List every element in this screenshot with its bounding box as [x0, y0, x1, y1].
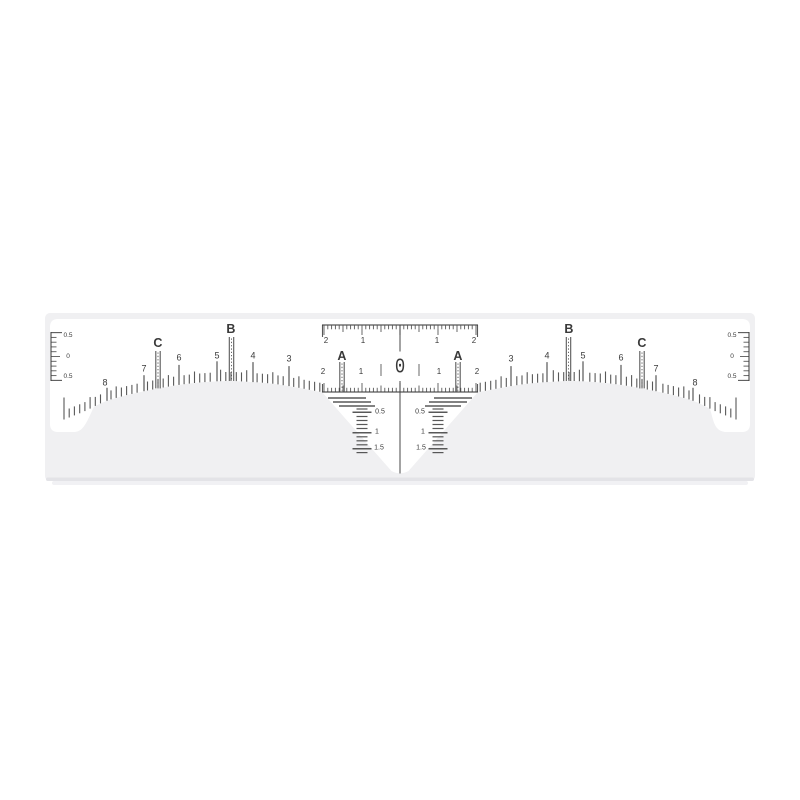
arch-number-right-3: 3 [508, 355, 513, 364]
side-scale-left-05-bottom: 0.5 [63, 374, 72, 381]
marker-a-left: A [337, 350, 346, 363]
marker-a-right: A [453, 350, 462, 363]
drop-scale-right-05: 0.5 [415, 409, 425, 416]
drop-scale-left-1: 1 [375, 429, 379, 436]
arch-number-left-4: 4 [250, 352, 255, 361]
side-scale-right-0: 0 [730, 354, 734, 361]
drop-scale-left-05: 0.5 [375, 409, 385, 416]
drop-scale-right-1: 1 [421, 429, 425, 436]
arch-number-right-8: 8 [692, 379, 697, 388]
ruler-sticker-graphic [0, 0, 800, 800]
marker-b-left: B [226, 323, 235, 336]
mid-scale-label-1-left: 1 [359, 368, 363, 376]
side-scale-right-05-bottom: 0.5 [727, 374, 736, 381]
arch-number-left-6: 6 [176, 354, 181, 363]
center-zero-label: 0 [395, 358, 405, 379]
side-scale-left-0: 0 [66, 354, 70, 361]
top-scale-label-2-right: 2 [472, 337, 476, 345]
mid-scale-label-2-left: 2 [321, 368, 325, 376]
top-scale-label-2-left: 2 [324, 337, 328, 345]
side-scale-left-05-top: 0.5 [63, 333, 72, 340]
mid-scale-label-2-right: 2 [475, 368, 479, 376]
side-scale-right-05-top: 0.5 [727, 333, 736, 340]
mid-scale-label-1-right: 1 [437, 368, 441, 376]
drop-scale-right-15: 1.5 [416, 445, 426, 452]
marker-c-right: C [637, 337, 646, 350]
top-scale-label-1-left: 1 [361, 337, 365, 345]
marker-b-right: B [564, 323, 573, 336]
arch-number-left-3: 3 [286, 355, 291, 364]
arch-number-right-6: 6 [618, 354, 623, 363]
arch-number-left-7: 7 [141, 365, 146, 374]
eyebrow-ruler-product-photo: 8 7 6 5 4 3 3 4 5 6 7 8 C B A A B C 0 2 … [0, 0, 800, 800]
arch-number-left-8: 8 [102, 379, 107, 388]
top-scale-label-1-right: 1 [435, 337, 439, 345]
arch-number-right-5: 5 [580, 352, 585, 361]
drop-scale-left-15: 1.5 [374, 445, 384, 452]
arch-number-left-5: 5 [214, 352, 219, 361]
arch-number-right-4: 4 [544, 352, 549, 361]
marker-c-left: C [153, 337, 162, 350]
arch-number-right-7: 7 [653, 365, 658, 374]
